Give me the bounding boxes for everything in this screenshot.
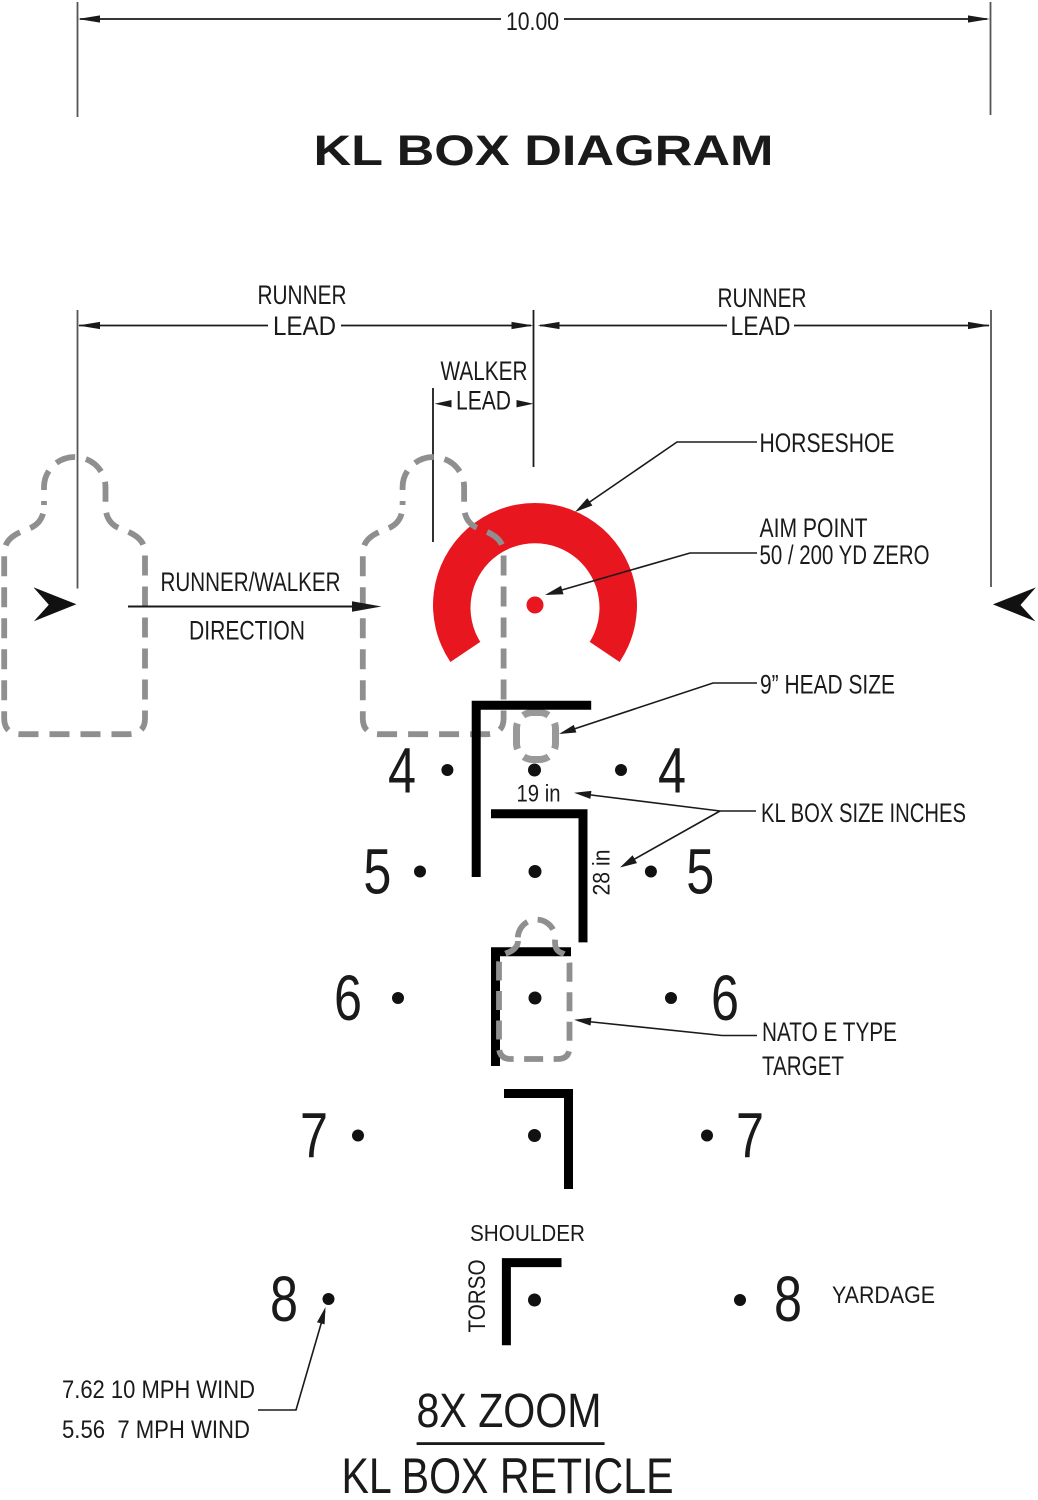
svg-text:6: 6 — [334, 962, 362, 1034]
svg-text:8: 8 — [270, 1263, 298, 1335]
svg-text:4: 4 — [658, 735, 686, 807]
svg-text:NATO E TYPE: NATO E TYPE — [762, 1017, 897, 1047]
svg-text:19 in: 19 in — [517, 781, 561, 808]
svg-text:LEAD: LEAD — [731, 311, 791, 341]
svg-text:YARDAGE: YARDAGE — [832, 1282, 935, 1309]
svg-text:WALKER: WALKER — [441, 356, 528, 386]
svg-text:TARGET: TARGET — [762, 1051, 844, 1081]
svg-text:7: 7 — [300, 1100, 328, 1172]
svg-text:5.56 7 MPH WIND: 5.56 7 MPH WIND — [62, 1416, 250, 1444]
svg-text:AIM POINT: AIM POINT — [760, 513, 868, 543]
svg-text:KL BOX SIZE INCHES: KL BOX SIZE INCHES — [761, 798, 966, 828]
svg-text:8X ZOOM: 8X ZOOM — [417, 1385, 602, 1438]
svg-text:RUNNER: RUNNER — [718, 283, 807, 313]
svg-text:7.62 10 MPH WIND: 7.62 10 MPH WIND — [62, 1376, 255, 1404]
svg-text:4: 4 — [388, 735, 416, 807]
svg-text:10.00: 10.00 — [506, 8, 559, 36]
svg-text:RUNNER: RUNNER — [258, 280, 347, 310]
svg-text:5: 5 — [363, 836, 391, 908]
svg-text:TORSO: TORSO — [464, 1260, 491, 1333]
svg-text:SHOULDER: SHOULDER — [470, 1220, 585, 1246]
svg-text:HORSESHOE: HORSESHOE — [760, 428, 895, 458]
svg-text:9” HEAD SIZE: 9” HEAD SIZE — [760, 670, 895, 700]
svg-text:7: 7 — [736, 1100, 764, 1172]
svg-text:KL BOX RETICLE: KL BOX RETICLE — [342, 1448, 674, 1500]
svg-text:50 / 200 YD ZERO: 50 / 200 YD ZERO — [760, 540, 930, 570]
svg-text:DIRECTION: DIRECTION — [189, 616, 305, 646]
svg-text:RUNNER/WALKER: RUNNER/WALKER — [161, 567, 341, 597]
svg-text:5: 5 — [686, 836, 714, 908]
svg-text:8: 8 — [774, 1263, 802, 1335]
svg-text:28 in: 28 in — [589, 850, 616, 896]
svg-text:KL BOX DIAGRAM: KL BOX DIAGRAM — [314, 127, 774, 175]
svg-text:6: 6 — [711, 962, 739, 1034]
svg-text:LEAD: LEAD — [456, 386, 511, 416]
svg-text:LEAD: LEAD — [273, 311, 336, 341]
